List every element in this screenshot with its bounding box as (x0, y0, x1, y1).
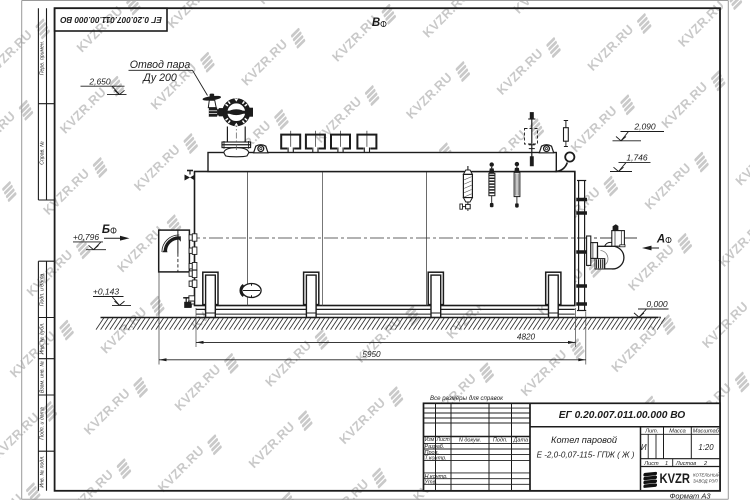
svg-text:KVZR.RU: KVZR.RU (517, 347, 569, 399)
svg-text:KVZR.RU: KVZR.RU (171, 361, 223, 413)
svg-text:+0,143: +0,143 (93, 286, 120, 296)
svg-text:Формат А3: Формат А3 (669, 492, 711, 500)
svg-text:Отвод пара: Отвод пара (130, 59, 191, 71)
svg-text:KVZR.RU: KVZR.RU (0, 409, 42, 461)
svg-text:Утв.: Утв. (424, 480, 438, 486)
svg-text:А: А (656, 234, 665, 246)
svg-text:KVZR.RU: KVZR.RU (255, 0, 307, 7)
svg-text:KVZR.RU: KVZR.RU (57, 84, 109, 136)
svg-text:Е -2,0-0,07-115- ГПЖ ( Ж ): Е -2,0-0,07-115- ГПЖ ( Ж ) (537, 451, 635, 460)
svg-text:ЕГ 0.20.007.011.00.000 ВО: ЕГ 0.20.007.011.00.000 ВО (60, 15, 162, 24)
svg-text:Инв. № дубл.: Инв. № дубл. (40, 323, 46, 355)
svg-text:Взам. инв. №: Взам. инв. № (40, 361, 46, 393)
svg-text:KVZR.RU: KVZR.RU (23, 247, 75, 299)
svg-text:Лист: Лист (436, 437, 450, 443)
svg-text:KVZR.RU: KVZR.RU (732, 136, 750, 188)
svg-text:KVZR.RU: KVZR.RU (403, 69, 455, 121)
svg-text:1,746: 1,746 (626, 152, 648, 162)
svg-text:Справ. №: Справ. № (40, 141, 46, 165)
svg-text:KVZR.RU: KVZR.RU (245, 419, 297, 471)
svg-text:Т.контр.: Т.контр. (425, 456, 447, 462)
svg-text:KVZR.RU: KVZR.RU (238, 36, 290, 88)
svg-text:2,090: 2,090 (633, 121, 656, 131)
svg-text:+0,796: +0,796 (73, 232, 100, 242)
svg-text:KVZR.RU: KVZR.RU (155, 443, 207, 495)
svg-text:Котел паровой: Котел паровой (551, 435, 617, 445)
svg-text:Б: Б (102, 224, 110, 236)
svg-text:KVZR.RU: KVZR.RU (584, 21, 636, 73)
svg-text:Лит.: Лит. (644, 429, 658, 435)
svg-text:ЗАВОД РЭП: ЗАВОД РЭП (693, 479, 719, 484)
svg-text:Дата: Дата (513, 437, 529, 443)
svg-text:KVZR.RU: KVZR.RU (164, 0, 216, 31)
svg-text:Ду 200: Ду 200 (142, 72, 177, 84)
svg-text:KVZR.RU: KVZR.RU (568, 103, 620, 155)
svg-text:KVZR.RU: KVZR.RU (494, 45, 546, 97)
svg-text:Инв. № подл.: Инв. № подл. (40, 455, 46, 487)
svg-text:KVZR.RU: KVZR.RU (420, 0, 472, 40)
svg-text:KVZR.RU: KVZR.RU (262, 337, 314, 389)
svg-text:KVZR.RU: KVZR.RU (0, 189, 2, 241)
svg-text:KVZR: KVZR (660, 471, 691, 486)
svg-text:KVZR.RU: KVZR.RU (608, 323, 660, 375)
svg-text:KVZR.RU: KVZR.RU (642, 160, 694, 212)
svg-text:KVZR.RU: KVZR.RU (319, 476, 371, 500)
svg-text:1:20: 1:20 (698, 443, 714, 452)
svg-text:Масштаб: Масштаб (693, 429, 720, 435)
svg-text:2,650: 2,650 (88, 76, 111, 86)
svg-text:4820: 4820 (517, 333, 536, 342)
svg-text:Подп. и дата: Подп. и дата (40, 407, 46, 440)
svg-text:KVZR.RU: KVZR.RU (81, 385, 133, 437)
svg-text:1: 1 (665, 461, 668, 467)
svg-text:KVZR.RU: KVZR.RU (0, 108, 18, 160)
svg-text:N докум.: N докум. (459, 437, 481, 443)
svg-text:KVZR.RU: KVZR.RU (64, 467, 116, 500)
svg-text:Перв. примен.: Перв. примен. (40, 41, 46, 75)
svg-text:KVZR.RU: KVZR.RU (699, 299, 750, 351)
svg-text:КОТЕЛЬНЫЙ: КОТЕЛЬНЫЙ (693, 473, 721, 478)
svg-text:Масса: Масса (669, 429, 686, 435)
svg-text:ЕГ 0.20.007.011.00.000 ВО: ЕГ 0.20.007.011.00.000 ВО (559, 410, 686, 421)
svg-text:KVZR.RU: KVZR.RU (0, 27, 35, 79)
svg-text:В: В (372, 17, 380, 29)
svg-text:KVZR.RU: KVZR.RU (97, 304, 149, 356)
svg-text:KVZR.RU: KVZR.RU (40, 165, 92, 217)
svg-text:Лист: Лист (643, 461, 659, 467)
svg-text:Изм: Изм (425, 437, 435, 443)
svg-text:0,000: 0,000 (646, 299, 668, 309)
svg-text:Все размеры для справок: Все размеры для справок (430, 395, 504, 402)
svg-text:Подп.: Подп. (493, 437, 508, 443)
svg-text:KVZR.RU: KVZR.RU (73, 3, 125, 55)
svg-text:KVZR.RU: KVZR.RU (658, 79, 710, 131)
svg-text:KVZR.RU: KVZR.RU (336, 395, 388, 447)
svg-text:Листов: Листов (675, 461, 696, 467)
svg-text:5950: 5950 (362, 350, 381, 359)
svg-text:Подп. и дата: Подп. и дата (40, 274, 46, 307)
svg-text:KVZR.RU: KVZR.RU (131, 141, 183, 193)
svg-text:И: И (641, 443, 647, 452)
svg-text:KVZR.RU: KVZR.RU (7, 328, 59, 380)
